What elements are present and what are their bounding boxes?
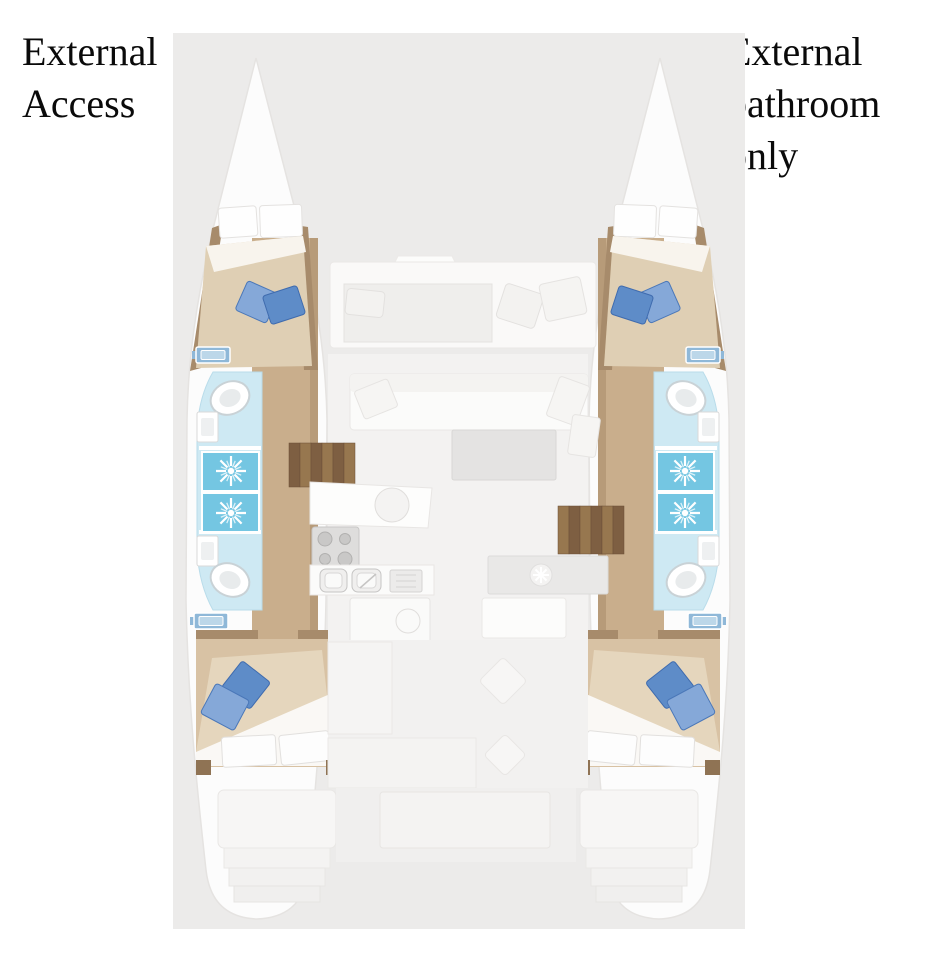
salon-table <box>452 430 556 480</box>
label-line: External <box>22 26 158 78</box>
label-line: only <box>727 130 880 182</box>
aft-deck <box>336 788 576 862</box>
label-line: External <box>727 26 880 78</box>
starboard-stairs <box>558 506 624 554</box>
cockpit <box>328 640 588 788</box>
galley-sink-round <box>375 488 409 522</box>
foredeck-seating <box>330 256 596 348</box>
label-external-access: External Access <box>22 26 158 130</box>
port-stairs <box>289 443 355 487</box>
galley-stove <box>312 527 359 571</box>
label-line: Access <box>22 78 158 130</box>
label-external-bathroom-only: External bathroom only <box>727 26 880 182</box>
yacht-floorplan-image <box>173 33 745 929</box>
label-line: bathroom <box>727 78 880 130</box>
floorplan-svg <box>173 33 745 929</box>
